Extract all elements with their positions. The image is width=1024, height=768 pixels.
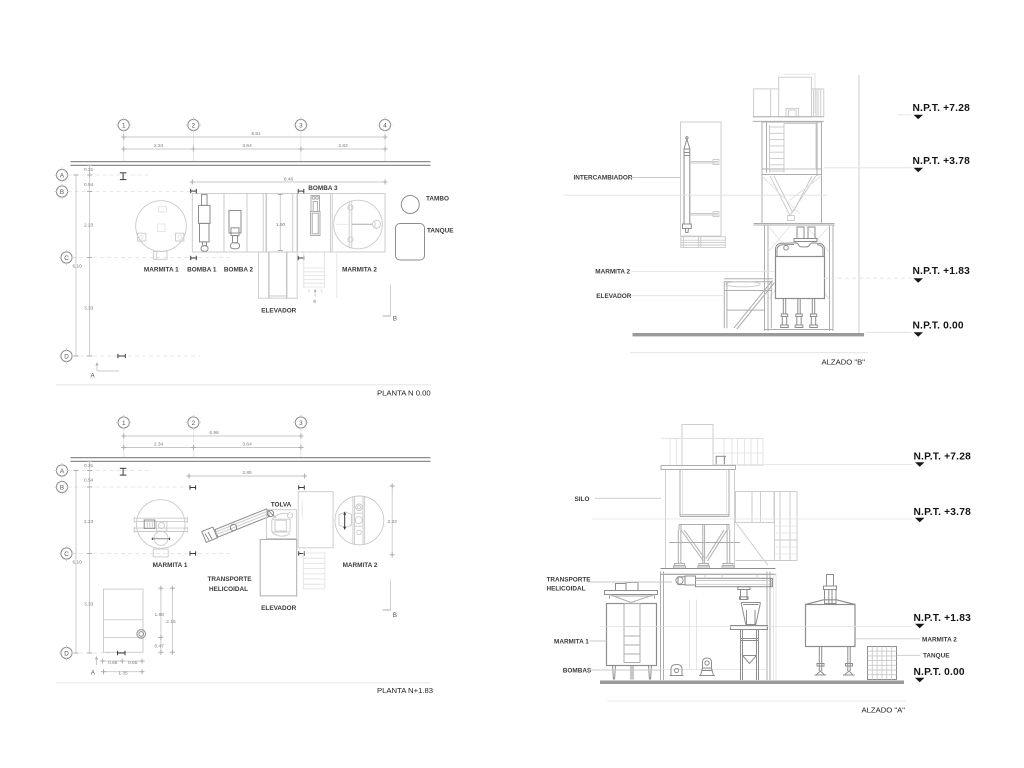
svg-text:B: B (60, 484, 64, 491)
svg-text:ELEVADOR: ELEVADOR (261, 308, 296, 315)
svg-text:TRANSPORTE: TRANSPORTE (207, 576, 252, 583)
svg-text:TOLVA: TOLVA (271, 502, 292, 509)
svg-text:PLANTA N 0.00: PLANTA N 0.00 (377, 388, 431, 397)
svg-text:B: B (60, 189, 64, 196)
svg-text:0.54: 0.54 (84, 477, 94, 483)
svg-text:TRANSPORTE: TRANSPORTE (547, 577, 592, 584)
svg-text:SILO: SILO (575, 496, 590, 503)
svg-text:0.47: 0.47 (155, 644, 165, 650)
svg-text:D: D (64, 650, 69, 657)
svg-text:ALZADO "A": ALZADO "A" (862, 705, 906, 714)
svg-text:HELICOIDAL: HELICOIDAL (547, 586, 586, 593)
svg-text:1: 1 (122, 122, 126, 129)
svg-text:MARMITA 2: MARMITA 2 (342, 266, 377, 273)
svg-text:N.P.T. +7.28: N.P.T. +7.28 (913, 103, 971, 114)
svg-text:3: 3 (299, 122, 303, 129)
svg-text:N.P.T. +1.83: N.P.T. +1.83 (914, 613, 972, 624)
svg-text:3.85: 3.85 (242, 470, 252, 476)
svg-text:MARMITA 1: MARMITA 1 (554, 638, 589, 645)
svg-text:2.23: 2.23 (84, 223, 94, 229)
svg-text:ALZADO "B": ALZADO "B" (822, 357, 866, 366)
svg-text:C: C (64, 255, 69, 262)
svg-text:BOMBA 2: BOMBA 2 (224, 266, 254, 273)
svg-text:TANQUE: TANQUE (923, 652, 950, 659)
svg-text:8.81: 8.81 (251, 131, 261, 137)
svg-text:MARMITA 1: MARMITA 1 (144, 266, 179, 273)
svg-text:BOMBA 1: BOMBA 1 (187, 266, 217, 273)
svg-text:MARMITA 2: MARMITA 2 (343, 562, 378, 569)
svg-text:3.33: 3.33 (84, 602, 94, 608)
svg-text:2: 2 (192, 122, 196, 129)
svg-text:2.15: 2.15 (166, 619, 176, 625)
svg-text:ELEVADOR: ELEVADOR (261, 605, 296, 612)
svg-text:TAMBO: TAMBO (426, 196, 449, 203)
svg-text:BOMBAS: BOMBAS (563, 667, 592, 674)
svg-text:4: 4 (383, 122, 387, 129)
svg-text:0.65: 0.65 (128, 660, 138, 666)
svg-text:MARMITA 2: MARMITA 2 (922, 636, 957, 643)
svg-text:N.P.T. +1.83: N.P.T. +1.83 (913, 266, 971, 277)
svg-text:1.90: 1.90 (276, 222, 286, 228)
svg-text:1: 1 (122, 420, 126, 427)
svg-text:N.P.T. +7.28: N.P.T. +7.28 (914, 451, 972, 462)
svg-text:0.31: 0.31 (84, 463, 94, 469)
svg-text:2.23: 2.23 (84, 519, 94, 525)
svg-text:0.68: 0.68 (108, 660, 118, 666)
svg-text:6.98: 6.98 (209, 430, 219, 436)
svg-text:N.P.T. 0.00: N.P.T. 0.00 (913, 320, 964, 331)
svg-text:N.P.T. 0.00: N.P.T. 0.00 (914, 667, 965, 678)
svg-text:B: B (393, 612, 397, 619)
svg-text:B: B (393, 316, 397, 323)
svg-text:D: D (64, 353, 69, 360)
svg-text:2.82: 2.82 (338, 143, 348, 149)
svg-text:TANQUE: TANQUE (427, 228, 454, 235)
svg-text:1.68: 1.68 (155, 612, 165, 618)
svg-text:INTERCAMBIADOR: INTERCAMBIADOR (574, 174, 633, 181)
svg-text:3.64: 3.64 (242, 442, 252, 448)
svg-text:N.P.T. +3.78: N.P.T. +3.78 (914, 507, 972, 518)
svg-text:PLANTA N+1.83: PLANTA N+1.83 (377, 686, 433, 695)
svg-text:1.35: 1.35 (118, 671, 128, 677)
svg-text:2: 2 (192, 420, 196, 427)
svg-text:N.P.T. +3.78: N.P.T. +3.78 (913, 156, 971, 167)
svg-text:MARMITA 1: MARMITA 1 (153, 562, 188, 569)
svg-text:ELEVADOR: ELEVADOR (596, 293, 631, 300)
svg-text:6.46: 6.46 (284, 176, 294, 182)
svg-text:3.33: 3.33 (84, 306, 94, 312)
svg-text:BOMBA 3: BOMBA 3 (308, 185, 338, 192)
svg-text:6.10: 6.10 (73, 560, 83, 566)
svg-text:2.34: 2.34 (154, 442, 164, 448)
svg-text:2.33: 2.33 (388, 519, 398, 525)
svg-text:6.10: 6.10 (73, 264, 83, 270)
svg-text:HELICOIDAL: HELICOIDAL (209, 586, 248, 593)
svg-text:3.64: 3.64 (242, 143, 252, 149)
svg-text:3: 3 (299, 420, 303, 427)
svg-text:0.31: 0.31 (84, 167, 94, 173)
svg-text:0.54: 0.54 (84, 182, 94, 188)
svg-text:C: C (64, 551, 69, 558)
svg-text:MARMITA 2: MARMITA 2 (595, 269, 630, 276)
svg-text:2.34: 2.34 (154, 143, 164, 149)
